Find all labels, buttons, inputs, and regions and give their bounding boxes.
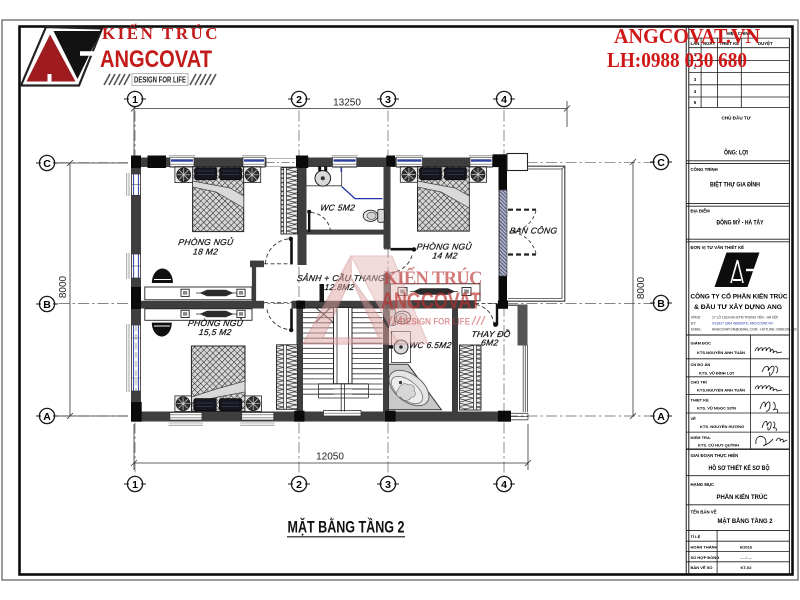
svg-text:KTS. NGUYỄN HƯƠNG: KTS. NGUYỄN HƯƠNG xyxy=(700,424,744,429)
svg-text:DESIGN FOR LIFE: DESIGN FOR LIFE xyxy=(134,75,186,85)
svg-text:CN ĐỒ ÁN: CN ĐỒ ÁN xyxy=(691,362,711,367)
svg-text:KTS. VŨ ĐÌNH LỢI: KTS. VŨ ĐÌNH LỢI xyxy=(699,371,734,376)
svg-text:4: 4 xyxy=(501,94,507,106)
svg-text:EMAIL:: EMAIL: xyxy=(691,328,702,332)
svg-text:MẶT BẰNG TẦNG 2: MẶT BẰNG TẦNG 2 xyxy=(288,518,405,537)
svg-text:8000: 8000 xyxy=(636,276,647,299)
svg-text:8000: 8000 xyxy=(58,275,69,298)
svg-text:—../..—: —../..— xyxy=(740,556,752,560)
svg-text:04.6327 3364 WEBSITE: ANGCOVAT: 04.6327 3364 WEBSITE: ANGCOVAT.VN xyxy=(712,322,773,326)
svg-text:ÔNG: LỢI: ÔNG: LỢI xyxy=(724,148,748,157)
svg-text:2: 2 xyxy=(296,94,302,106)
svg-text:B: B xyxy=(657,298,665,310)
svg-text:ANGCOVAT.VN: ANGCOVAT.VN xyxy=(614,24,760,48)
svg-text:VẼ: VẼ xyxy=(691,416,697,421)
svg-text:14 M2: 14 M2 xyxy=(432,251,458,261)
svg-text:ĐỊA ĐIỂM: ĐỊA ĐIỂM xyxy=(691,209,711,214)
svg-text:6/2016: 6/2016 xyxy=(740,545,753,550)
svg-text:ĐƠN VỊ TƯ VẤN THIẾT KẾ: ĐƠN VỊ TƯ VẤN THIẾT KẾ xyxy=(691,245,745,250)
svg-text:BIỆT THỰ GIA ĐÌNH: BIỆT THỰ GIA ĐÌNH xyxy=(710,180,760,189)
svg-text:CHỦ TRÌ: CHỦ TRÌ xyxy=(691,380,707,385)
svg-text:VPĐD:: VPĐD: xyxy=(691,316,701,320)
svg-text:PHÒNG NGỦ: PHÒNG NGỦ xyxy=(178,236,235,247)
svg-text:WC 5M2: WC 5M2 xyxy=(320,203,356,213)
svg-text:3: 3 xyxy=(385,479,391,491)
svg-text:HẠNG MỤC: HẠNG MỤC xyxy=(691,482,715,487)
svg-text:18 M2: 18 M2 xyxy=(192,247,218,257)
svg-text:ĐT:: ĐT: xyxy=(691,322,696,326)
svg-text:CHỦ ĐẦU TƯ: CHỦ ĐẦU TƯ xyxy=(721,115,750,121)
svg-text:KIẾN TRÚC: KIẾN TRÚC xyxy=(384,267,483,289)
svg-text:A: A xyxy=(43,411,51,423)
svg-text:TỈ LỆ: TỈ LỆ xyxy=(691,534,701,539)
svg-text:13250: 13250 xyxy=(333,98,361,109)
svg-text:A: A xyxy=(657,411,665,423)
svg-text:ANGCOVAT: ANGCOVAT xyxy=(381,288,481,314)
svg-text:ANGCOVAT: ANGCOVAT xyxy=(100,46,212,73)
svg-text:KTS. CÙ HUY QUỲNH: KTS. CÙ HUY QUỲNH xyxy=(698,443,739,448)
svg-text:TÊN BẢN VẼ: TÊN BẢN VẼ xyxy=(691,510,717,515)
svg-text:ĐÔNG MỸ - HÀ TÂY: ĐÔNG MỸ - HÀ TÂY xyxy=(717,218,765,227)
svg-text:KIỂM TRA.: KIỂM TRA. xyxy=(691,435,711,440)
svg-text:KTS. VŨ NGỌC SƠN: KTS. VŨ NGỌC SƠN xyxy=(697,406,736,411)
svg-text:DUYỆT: DUYỆT xyxy=(758,41,773,46)
svg-text:LH:0988 030 680: LH:0988 030 680 xyxy=(607,48,747,72)
svg-text:15,5 M2: 15,5 M2 xyxy=(198,327,232,337)
svg-text:6M2: 6M2 xyxy=(480,338,499,348)
svg-text:2: 2 xyxy=(296,479,302,491)
svg-text:BẢN VẼ SỐ: BẢN VẼ SỐ xyxy=(691,565,713,570)
svg-text:KT-02: KT-02 xyxy=(741,565,753,570)
svg-text:17 LÔ 11B KHU ĐTM TRUNG YÊN -: 17 LÔ 11B KHU ĐTM TRUNG YÊN - HÀ NỘI xyxy=(712,315,778,320)
svg-text:1: 1 xyxy=(132,479,138,491)
svg-text:GIAI ĐOẠN THỰC HIỆN: GIAI ĐOẠN THỰC HIỆN xyxy=(691,453,739,458)
svg-text:B: B xyxy=(43,299,51,311)
svg-text:KIẾN TRÚC: KIẾN TRÚC xyxy=(102,24,220,43)
svg-text:CÔNG TRÌNH: CÔNG TRÌNH xyxy=(691,167,718,172)
svg-text:BAN CÔNG: BAN CÔNG xyxy=(509,226,558,236)
svg-text:12050: 12050 xyxy=(316,452,344,463)
svg-text:SỐ HỢP ĐỒNG: SỐ HỢP ĐỒNG xyxy=(691,555,720,560)
svg-text:1: 1 xyxy=(132,94,138,106)
svg-text:C: C xyxy=(657,157,665,169)
svg-text:GIÁM ĐỐC: GIÁM ĐỐC xyxy=(691,341,712,346)
svg-text:DESIGN FOR LIFE: DESIGN FOR LIFE xyxy=(400,317,470,328)
svg-text:KTS.NGUYỄN ANH TUẤN: KTS.NGUYỄN ANH TUẤN xyxy=(697,350,745,355)
svg-text:4: 4 xyxy=(501,479,507,491)
svg-text:KTS.NGUYỄN ANH TUẤN: KTS.NGUYỄN ANH TUẤN xyxy=(697,388,745,393)
svg-text:HOÀN THÀNH: HOÀN THÀNH xyxy=(691,545,718,550)
svg-text:THIẾT KẾ: THIẾT KẾ xyxy=(691,398,710,403)
svg-text:C: C xyxy=(43,158,51,170)
svg-text:3: 3 xyxy=(385,94,391,106)
svg-text:ANGCOVAT.VN@GMAIL.COM - HOTLIN: ANGCOVAT.VN@GMAIL.COM - HOTLINE: 0988.03… xyxy=(712,328,797,332)
